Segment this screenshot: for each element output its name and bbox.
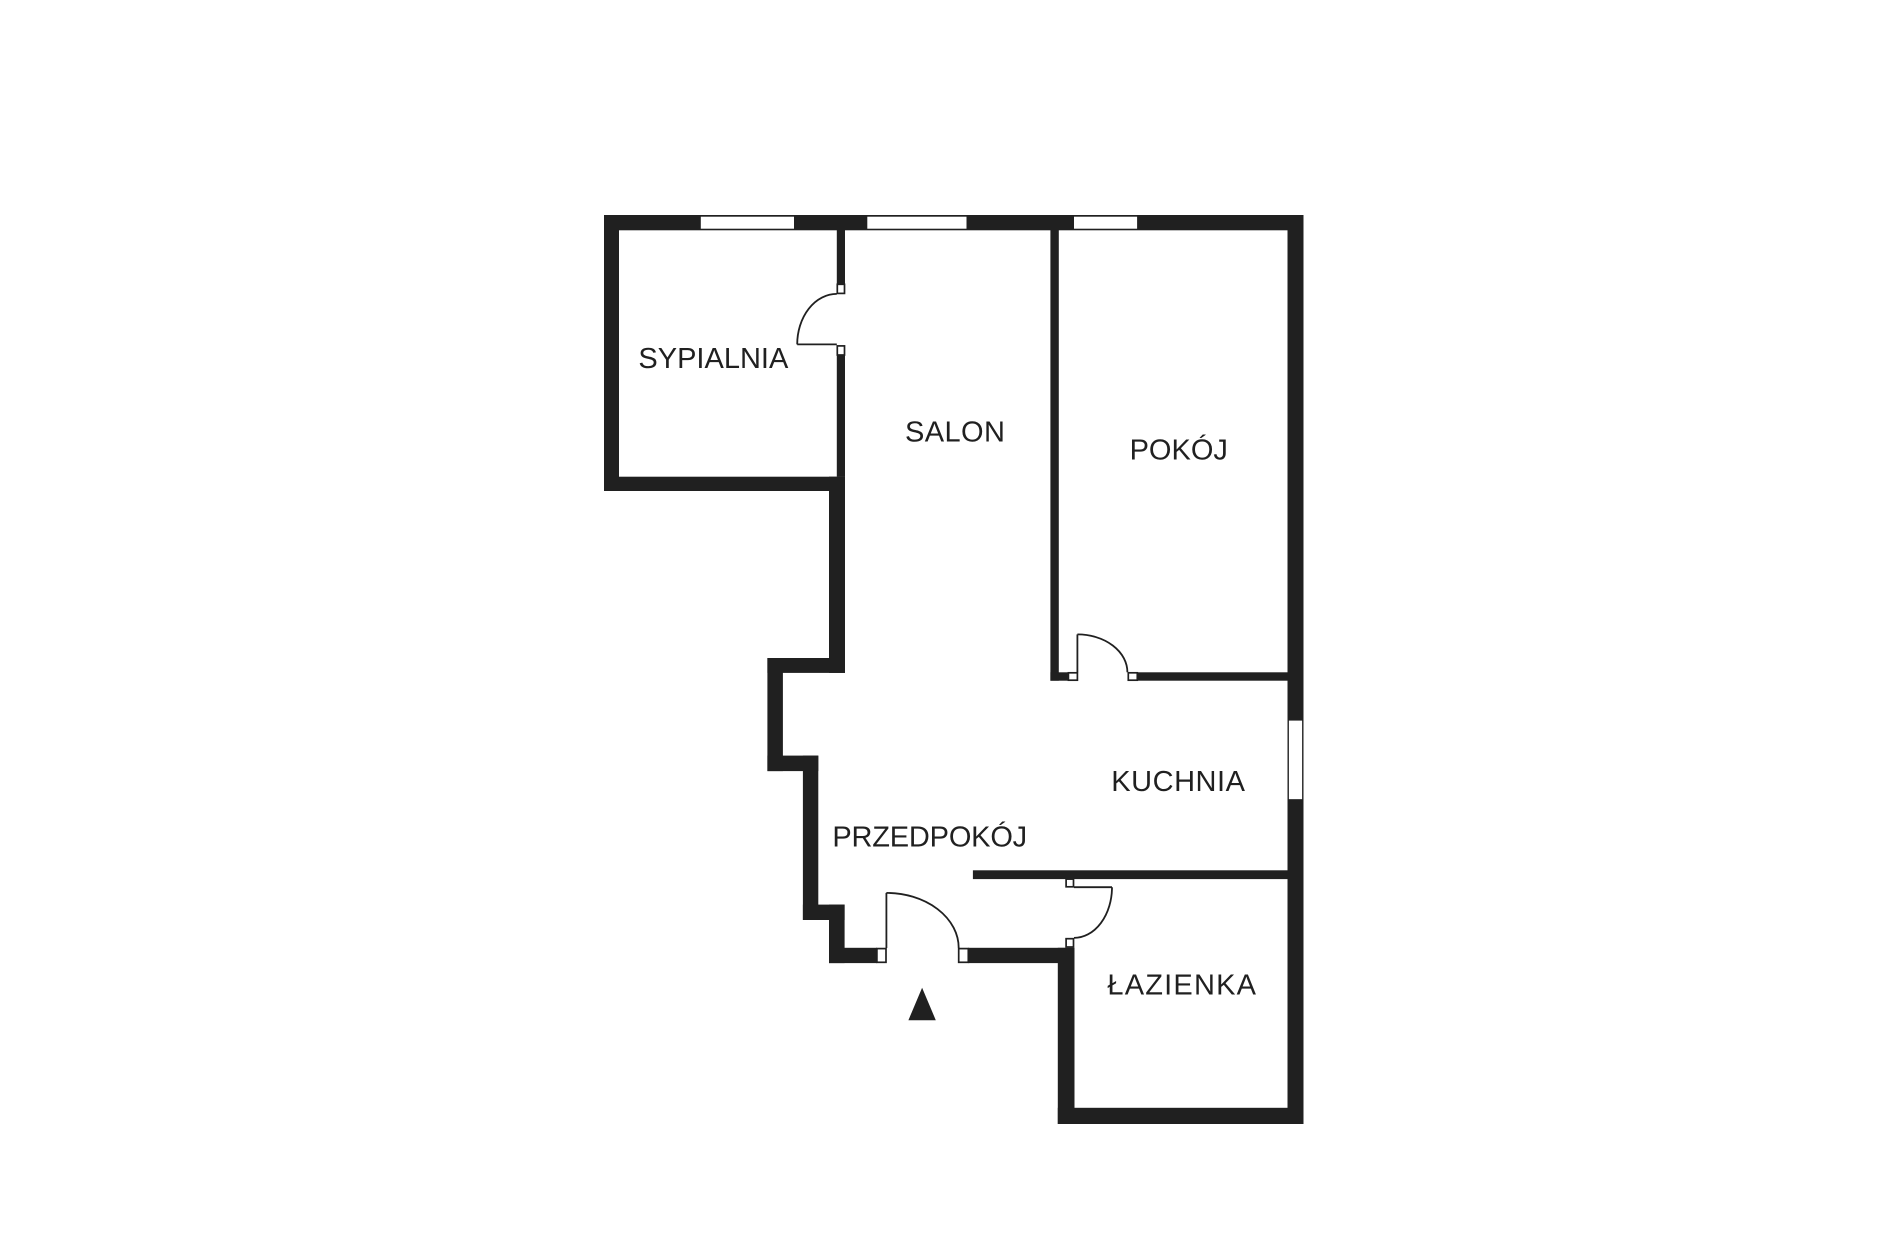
svg-text:SALON: SALON	[905, 417, 1005, 449]
svg-text:POKÓJ: POKÓJ	[1130, 433, 1228, 466]
svg-text:PRZEDPOKÓJ: PRZEDPOKÓJ	[832, 820, 1027, 853]
svg-text:ŁAZIENKA: ŁAZIENKA	[1107, 970, 1257, 1002]
svg-text:SYPIALNIA: SYPIALNIA	[638, 343, 789, 375]
svg-text:KUCHNIA: KUCHNIA	[1111, 766, 1245, 798]
